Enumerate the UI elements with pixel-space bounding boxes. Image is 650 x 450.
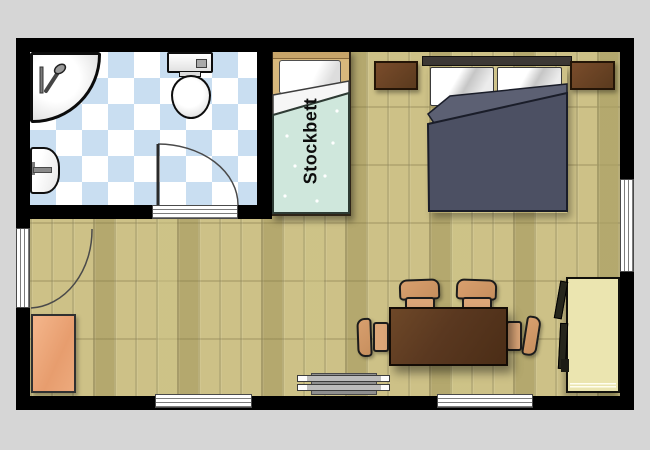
single-bed-label: Stockbett — [301, 97, 322, 184]
toilet-tank — [167, 52, 213, 73]
bathroom-partition-wall — [16, 205, 152, 219]
sideboard — [31, 314, 76, 393]
radiator-bar — [297, 375, 390, 382]
flush-button-icon — [196, 59, 207, 68]
double-bed-headboard — [422, 56, 572, 66]
entrance-door — [28, 226, 113, 312]
dining-table — [389, 307, 508, 366]
faucet-spout — [33, 167, 52, 173]
nightstand-right — [570, 61, 615, 90]
window-bottom-left — [155, 394, 252, 408]
floor-plan: Stockbett — [0, 0, 650, 450]
wardrobe — [566, 277, 620, 393]
bathroom-partition-wall — [257, 38, 272, 219]
single-bed: Stockbett — [271, 49, 351, 216]
bathroom-door — [154, 142, 242, 208]
shower-head-icon — [37, 59, 71, 103]
window-right — [620, 179, 634, 272]
nightstand-left — [374, 61, 418, 90]
chair-seat — [373, 322, 389, 352]
wall-left — [16, 38, 30, 410]
double-bed — [428, 66, 567, 213]
double-bed-duvet — [428, 84, 567, 213]
radiator-bar — [297, 384, 390, 391]
chair-seat — [506, 321, 522, 351]
bathroom-partition-wall — [238, 205, 272, 219]
window-bottom-right — [437, 394, 533, 408]
wardrobe-handle — [561, 359, 569, 372]
chair-back — [356, 318, 372, 357]
wall-top — [16, 38, 634, 52]
single-bed-headboard — [273, 51, 349, 59]
wall-bottom — [16, 396, 634, 410]
